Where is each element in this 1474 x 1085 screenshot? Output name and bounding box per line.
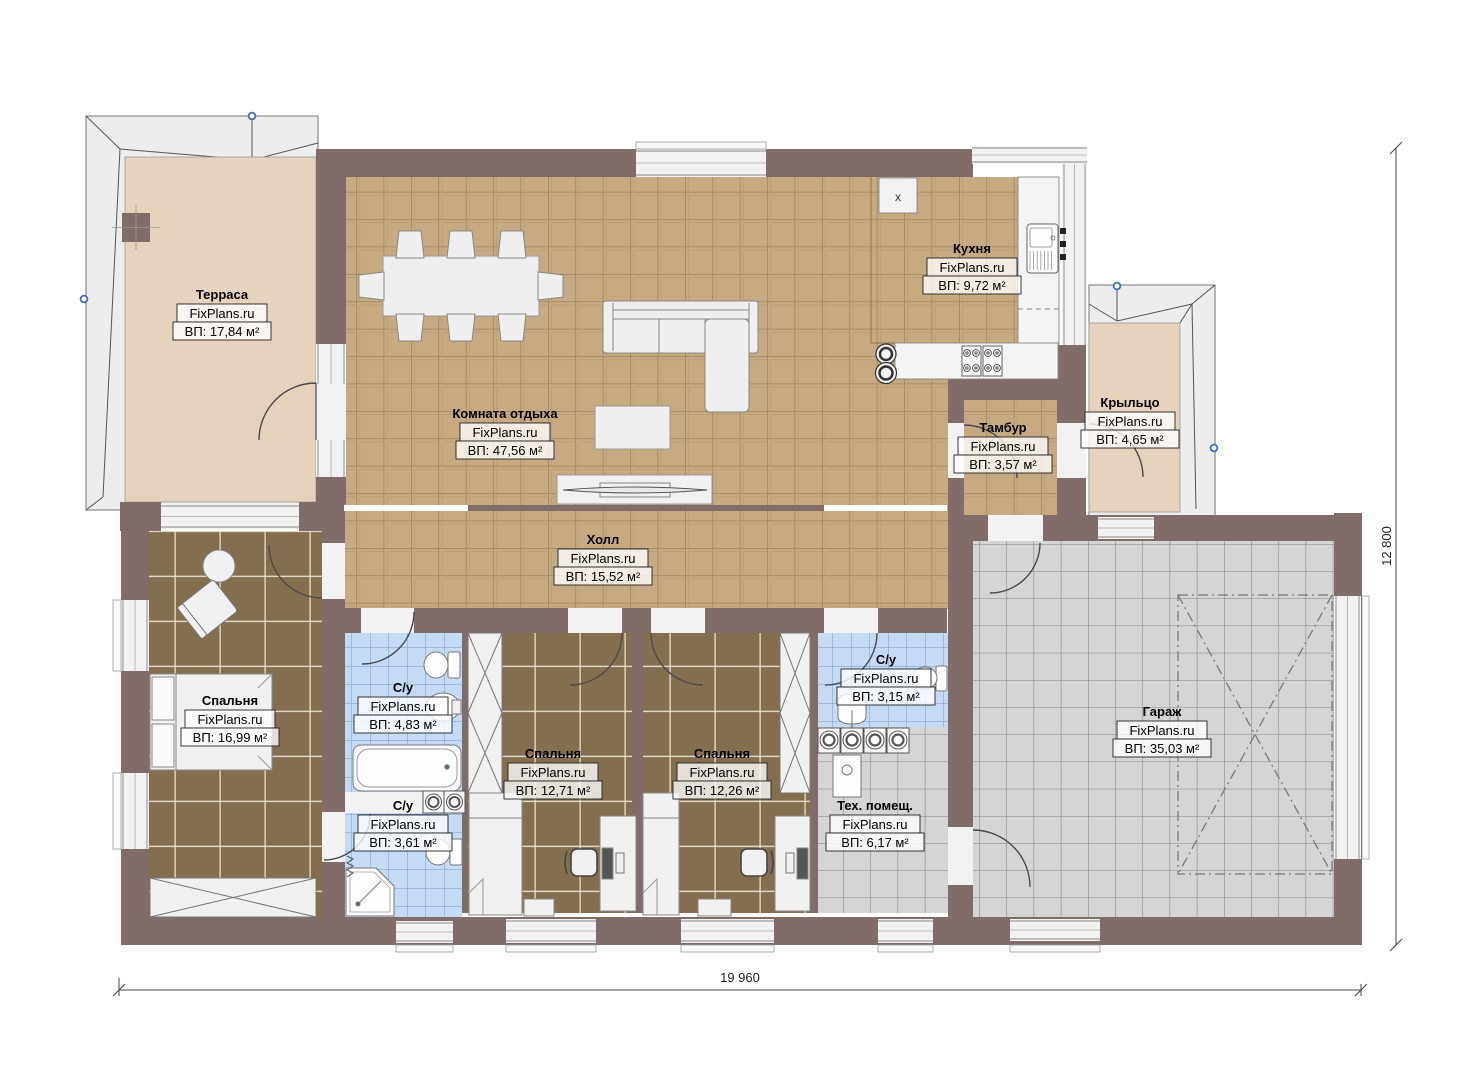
svg-text:ВП: 3,57 м²: ВП: 3,57 м² — [969, 457, 1037, 472]
svg-text:ВП: 4,65 м²: ВП: 4,65 м² — [1096, 432, 1164, 447]
svg-text:ВП: 9,72 м²: ВП: 9,72 м² — [938, 278, 1006, 293]
svg-text:FixPlans.ru: FixPlans.ru — [1129, 723, 1194, 738]
svg-text:С/у: С/у — [393, 798, 414, 813]
svg-text:FixPlans.ru: FixPlans.ru — [370, 699, 435, 714]
svg-text:FixPlans.ru: FixPlans.ru — [1097, 414, 1162, 429]
svg-text:Тех. помещ.: Тех. помещ. — [837, 798, 913, 813]
svg-text:ВП: 15,52 м²: ВП: 15,52 м² — [566, 569, 641, 584]
svg-text:Крыльцо: Крыльцо — [1100, 395, 1159, 410]
svg-text:Спальня: Спальня — [525, 746, 581, 761]
svg-text:FixPlans.ru: FixPlans.ru — [842, 817, 907, 832]
svg-text:Комната отдыха: Комната отдыха — [452, 406, 558, 421]
svg-text:Гараж: Гараж — [1143, 704, 1183, 719]
svg-text:Тамбур: Тамбур — [979, 420, 1026, 435]
svg-text:ВП: 12,26 м²: ВП: 12,26 м² — [685, 783, 760, 798]
svg-text:FixPlans.ru: FixPlans.ru — [970, 439, 1035, 454]
svg-text:19 960: 19 960 — [720, 970, 760, 985]
svg-text:x: x — [895, 190, 901, 204]
svg-text:FixPlans.ru: FixPlans.ru — [570, 551, 635, 566]
svg-text:Спальня: Спальня — [202, 693, 258, 708]
svg-text:FixPlans.ru: FixPlans.ru — [370, 817, 435, 832]
svg-text:ВП: 3,15 м²: ВП: 3,15 м² — [852, 689, 920, 704]
svg-text:ВП: 47,56 м²: ВП: 47,56 м² — [468, 443, 543, 458]
svg-text:ВП: 35,03 м²: ВП: 35,03 м² — [1125, 741, 1200, 756]
svg-text:ВП: 12,71 м²: ВП: 12,71 м² — [516, 783, 591, 798]
svg-text:Спальня: Спальня — [694, 746, 750, 761]
svg-text:Холл: Холл — [587, 532, 620, 547]
svg-text:ВП: 6,17 м²: ВП: 6,17 м² — [841, 835, 909, 850]
svg-text:С/у: С/у — [393, 680, 414, 695]
svg-text:FixPlans.ru: FixPlans.ru — [689, 765, 754, 780]
svg-text:FixPlans.ru: FixPlans.ru — [853, 671, 918, 686]
svg-text:12 800: 12 800 — [1379, 526, 1394, 566]
svg-text:FixPlans.ru: FixPlans.ru — [197, 712, 262, 727]
svg-text:FixPlans.ru: FixPlans.ru — [939, 260, 1004, 275]
svg-text:Терраса: Терраса — [196, 287, 249, 302]
svg-text:ВП: 17,84 м²: ВП: 17,84 м² — [185, 324, 260, 339]
svg-text:ВП: 3,61 м²: ВП: 3,61 м² — [369, 835, 437, 850]
svg-text:ВП: 16,99 м²: ВП: 16,99 м² — [193, 730, 268, 745]
svg-text:FixPlans.ru: FixPlans.ru — [472, 425, 537, 440]
svg-text:С/у: С/у — [876, 652, 897, 667]
svg-text:Кухня: Кухня — [953, 241, 991, 256]
svg-text:ВП: 4,83 м²: ВП: 4,83 м² — [369, 717, 437, 732]
svg-text:FixPlans.ru: FixPlans.ru — [189, 306, 254, 321]
svg-text:FixPlans.ru: FixPlans.ru — [520, 765, 585, 780]
